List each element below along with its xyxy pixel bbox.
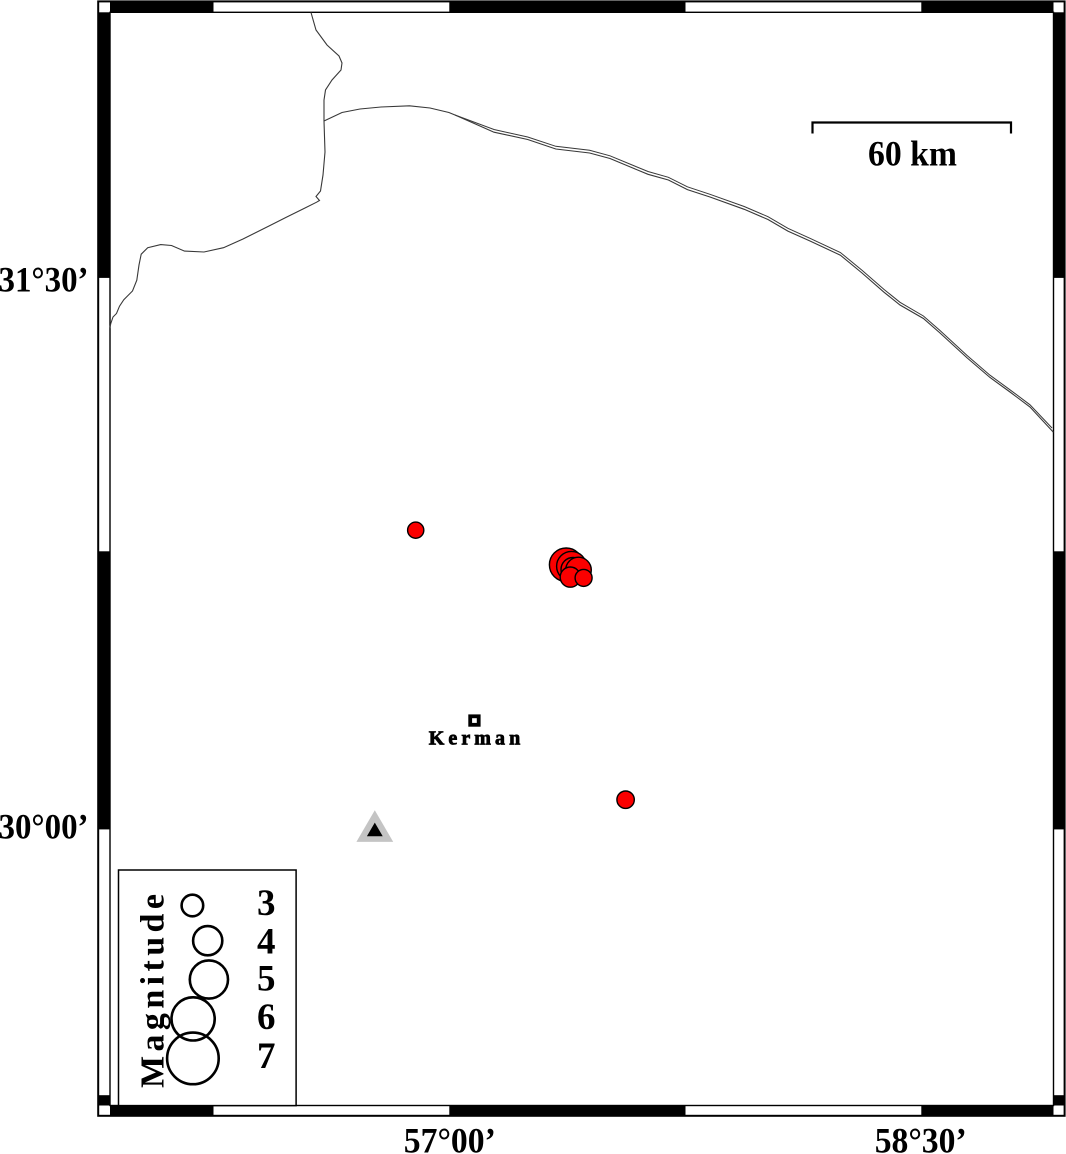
svg-text:30°00’: 30°00’ bbox=[0, 807, 89, 847]
svg-text:58°30’: 58°30’ bbox=[875, 1121, 967, 1154]
svg-text:4: 4 bbox=[257, 922, 276, 963]
svg-text:60 km: 60 km bbox=[868, 134, 957, 174]
svg-text:3: 3 bbox=[257, 883, 276, 924]
svg-text:57°00’: 57°00’ bbox=[404, 1121, 496, 1154]
svg-text:5: 5 bbox=[257, 959, 276, 1000]
svg-text:7: 7 bbox=[257, 1036, 276, 1077]
svg-text:6: 6 bbox=[257, 997, 276, 1038]
svg-text:31°30’: 31°30’ bbox=[0, 260, 89, 300]
